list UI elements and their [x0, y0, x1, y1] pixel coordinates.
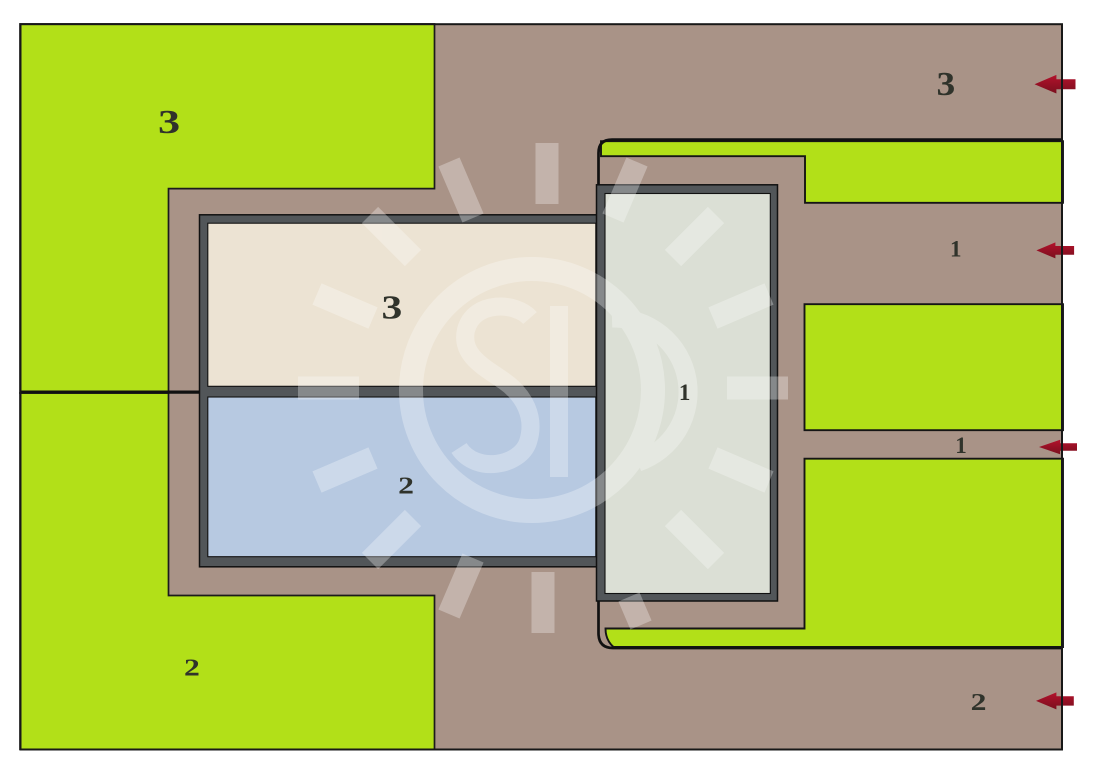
svg-text:1: 1 — [679, 380, 691, 405]
svg-text:3: 3 — [158, 103, 180, 141]
svg-text:3: 3 — [936, 65, 955, 103]
svg-text:2: 2 — [184, 655, 200, 681]
svg-text:1: 1 — [950, 237, 962, 262]
svg-text:2: 2 — [398, 473, 414, 499]
svg-text:1: 1 — [955, 433, 967, 458]
svg-text:3: 3 — [382, 289, 403, 327]
svg-text:2: 2 — [971, 689, 987, 715]
